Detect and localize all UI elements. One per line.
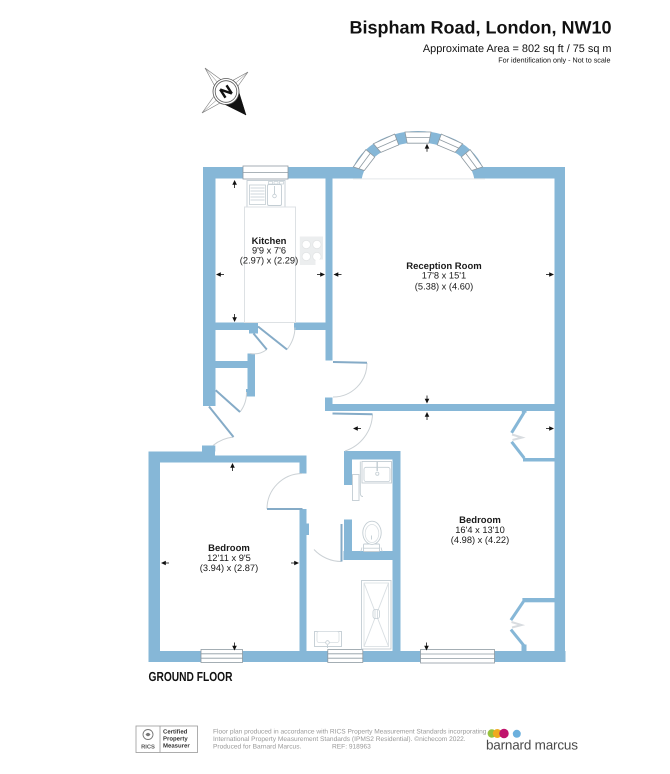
svg-text:barnard marcus: barnard marcus (486, 738, 578, 753)
svg-text:Property: Property (163, 736, 188, 743)
svg-text:9'9 x 7'6: 9'9 x 7'6 (252, 246, 286, 256)
svg-text:12'11 x 9'5: 12'11 x 9'5 (207, 553, 251, 563)
svg-text:Certified: Certified (163, 729, 188, 736)
svg-text:(4.98) x (4.22): (4.98) x (4.22) (451, 535, 509, 545)
svg-text:(3.94) x (2.87): (3.94) x (2.87) (200, 563, 258, 573)
svg-text:Produced for Barnard Marcus.: Produced for Barnard Marcus. (213, 744, 301, 751)
svg-text:17'8 x 15'1: 17'8 x 15'1 (422, 271, 466, 281)
svg-text:16'4 x 13'10: 16'4 x 13'10 (455, 525, 505, 535)
svg-text:REF: 918963: REF: 918963 (332, 744, 371, 751)
svg-text:(5.38) x (4.60): (5.38) x (4.60) (415, 282, 473, 292)
svg-text:Measurer: Measurer (163, 743, 190, 750)
svg-text:(2.97) x (2.29): (2.97) x (2.29) (240, 255, 298, 265)
svg-text:Bispham Road, London, NW10: Bispham Road, London, NW10 (349, 18, 611, 38)
svg-text:GROUND FLOOR: GROUND FLOOR (149, 669, 233, 684)
svg-text:For identification only - Not: For identification only - Not to scale (498, 56, 610, 65)
svg-text:Floor plan produced in accorda: Floor plan produced in accordance with R… (213, 728, 487, 735)
svg-text:Approximate Area = 802 sq ft /: Approximate Area = 802 sq ft / 75 sq m (423, 43, 612, 55)
svg-text:International Property Measure: International Property Measurement Stand… (213, 736, 466, 743)
svg-text:RICS: RICS (141, 744, 155, 751)
